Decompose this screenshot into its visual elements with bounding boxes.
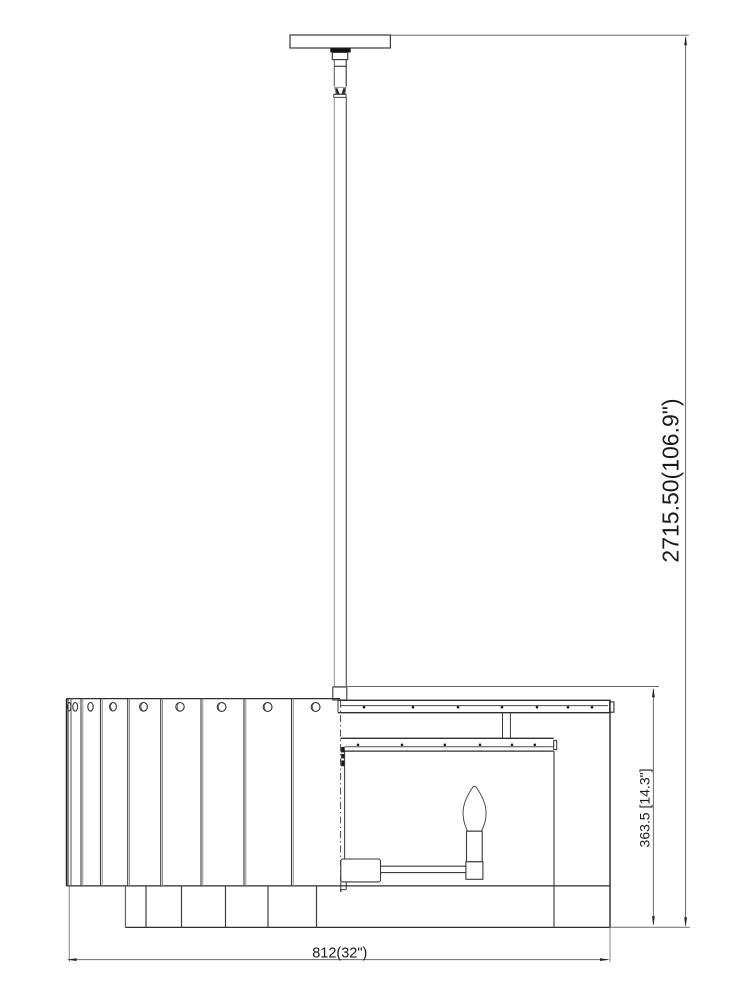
svg-text:363.5 [14.3"]: 363.5 [14.3"] (637, 769, 653, 848)
svg-text:2715.50(106.9"): 2715.50(106.9") (658, 398, 684, 562)
svg-text:812(32"): 812(32") (312, 945, 367, 961)
